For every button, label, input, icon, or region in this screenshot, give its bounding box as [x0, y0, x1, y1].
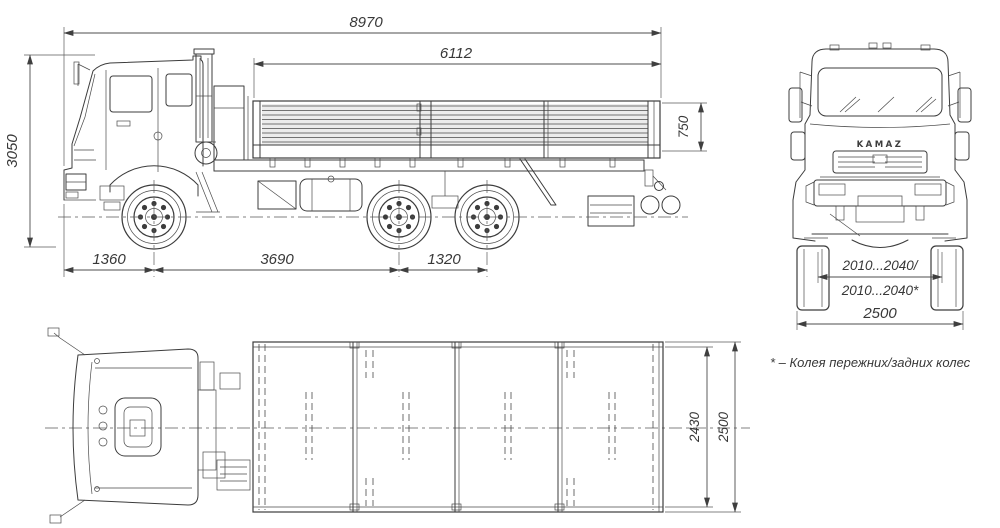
dim-wheelbase: 3690	[260, 251, 294, 268]
kamaz-logo-text: KAMAZ	[857, 140, 904, 150]
dim-wheel-track-1: 2010...2040/	[841, 258, 918, 273]
top-view-dimensions: 2430 2500	[665, 342, 741, 512]
flatbed-top	[253, 342, 663, 512]
dim-front-overhang: 1360	[92, 251, 126, 268]
dim-wheel-track-2: 2010...2040*	[841, 283, 919, 298]
windshield	[818, 68, 942, 116]
chassis-equipment-top	[198, 362, 250, 490]
front-view-drawing: KAMAZ 201	[770, 43, 971, 370]
cab-top	[48, 328, 198, 523]
tow-hitch	[645, 170, 666, 191]
dim-platform-length: 6112	[440, 45, 473, 62]
mirror-arms-top	[54, 333, 85, 517]
dim-overall-height: 3050	[4, 134, 21, 168]
drawing-canvas: 8970 6112 3050 750 1360 3690 1320	[0, 0, 1000, 528]
platform-hinges	[270, 158, 615, 167]
flatbed-side	[253, 101, 660, 167]
mudflap-bracket	[520, 159, 556, 205]
platform-dividers	[350, 342, 564, 512]
cab-side	[64, 56, 203, 210]
dimensional-drawing: 8970 6112 3050 750 1360 3690 1320	[0, 0, 1000, 528]
dim-overall-width: 2500	[862, 305, 897, 322]
dim-rear-bogie-base: 1320	[427, 251, 461, 268]
dim-platform-outer-width: 2500	[716, 411, 731, 443]
dim-board-height: 750	[676, 115, 691, 138]
track-footnote: * – Колея пережних/задних колес	[770, 355, 971, 370]
dim-platform-inner-width: 2430	[687, 411, 702, 443]
wipers	[840, 97, 936, 112]
fuel-tank	[300, 176, 362, 211]
top-view-drawing: 2430 2500	[45, 328, 750, 523]
front-view-right-wheel	[931, 246, 963, 310]
front-view-left-wheel	[797, 246, 829, 310]
grille	[833, 151, 927, 173]
dim-overall-length: 8970	[349, 14, 383, 31]
front-bumper	[806, 180, 954, 206]
side-view-drawing: 8970 6112 3050 750 1360 3690 1320	[4, 14, 707, 277]
front-axle	[812, 234, 948, 248]
